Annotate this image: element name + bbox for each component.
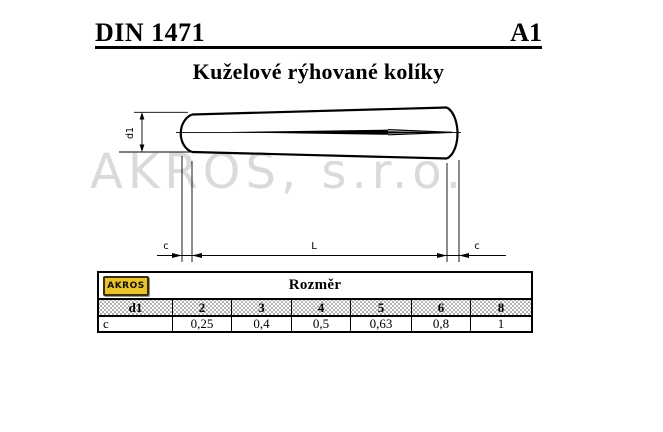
column-header-3: 3 bbox=[232, 300, 292, 315]
table-title-row: AKROS Rozměr bbox=[99, 273, 531, 300]
value-cell: 0,5 bbox=[292, 317, 351, 331]
column-header-6: 6 bbox=[412, 300, 471, 315]
length-label: L bbox=[311, 241, 317, 252]
extension-lines bbox=[182, 156, 459, 262]
column-header-2: 2 bbox=[173, 300, 232, 315]
dimension-table: AKROS Rozměr d1 2 3 4 5 6 8 c 0,25 0,4 0… bbox=[97, 271, 533, 333]
value-cell: 0,63 bbox=[351, 317, 412, 331]
taper-pin-drawing: d1 bbox=[0, 0, 663, 432]
c-right-label: c bbox=[474, 241, 480, 252]
column-header-5: 5 bbox=[351, 300, 412, 315]
pin-groove bbox=[213, 130, 452, 135]
c-left-label: c bbox=[163, 241, 169, 252]
din-standard-page: DIN 1471 A1 Kuželové rýhované kolíky AKR… bbox=[0, 0, 663, 432]
d1-label: d1 bbox=[125, 127, 136, 139]
column-header-d1: d1 bbox=[99, 300, 173, 315]
value-cell: 0,8 bbox=[412, 317, 471, 331]
column-header-4: 4 bbox=[292, 300, 351, 315]
value-cell: 1 bbox=[471, 317, 531, 331]
dimension-length: c L c bbox=[157, 241, 506, 258]
table-header-row: d1 2 3 4 5 6 8 bbox=[99, 300, 531, 317]
akros-logo-badge: AKROS bbox=[103, 276, 149, 296]
row-label-c: c bbox=[99, 317, 173, 331]
value-cell: 0,4 bbox=[232, 317, 292, 331]
value-cell: 0,25 bbox=[173, 317, 232, 331]
column-header-8: 8 bbox=[471, 300, 531, 315]
table-row: c 0,25 0,4 0,5 0,63 0,8 1 bbox=[99, 317, 531, 331]
table-title: Rozměr bbox=[289, 277, 342, 294]
